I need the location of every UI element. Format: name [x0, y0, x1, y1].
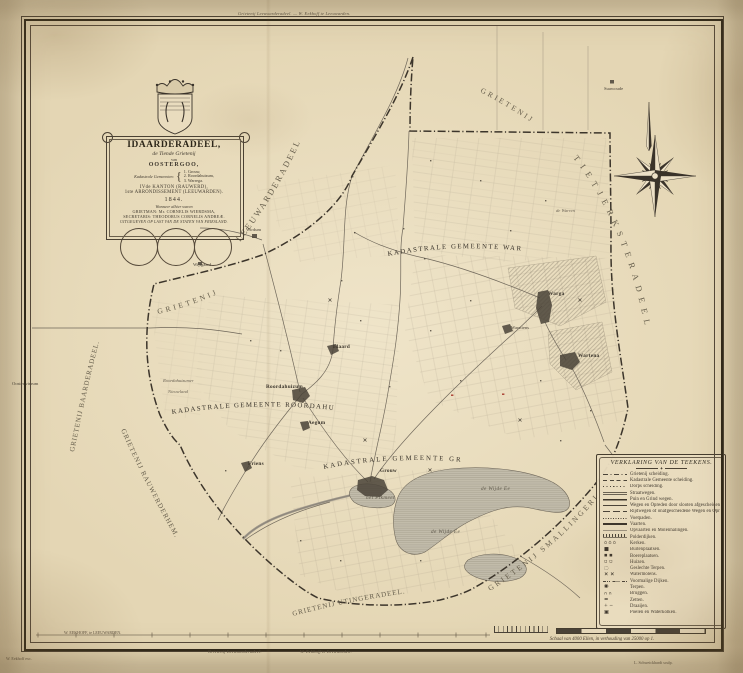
coat-of-arms — [140, 78, 210, 136]
legend-symbol-icon — [603, 597, 627, 603]
legend-symbol-icon — [603, 515, 627, 521]
arrondissement-line: 1ste ARRONDISSEMENT (LEEUWARDEN). — [108, 190, 240, 195]
svg-text:GRIETENIJ: GRIETENIJ — [479, 86, 536, 125]
legend-label: Boereplaatsen. — [630, 554, 659, 559]
map-title: IDAARDERADEEL, — [108, 140, 240, 150]
legend-label: Straatwegen. — [630, 491, 656, 496]
legend-label: Terpen. — [630, 585, 645, 590]
place-label-oosterwierum: Oosterwierum — [12, 381, 38, 386]
legend-symbol-icon — [603, 484, 627, 490]
legend-symbol-icon — [603, 584, 627, 590]
publisher-credit: W. EEKHOFF, te LEEUWARDEN. — [64, 630, 121, 635]
legend-symbol-icon — [603, 522, 627, 528]
legend-label: Wegen en Opreden door slooten afgescheid… — [630, 503, 720, 508]
legend-symbol-icon — [603, 553, 627, 559]
legend-label: Geslechte Terpen. — [630, 566, 665, 571]
legend-label: Polderdijken. — [630, 535, 656, 540]
place-label-wartena: Wartena — [578, 353, 599, 359]
area-label-roordahuizumer: Roordahuizumer — [163, 378, 194, 383]
engraver-credit: L. Schweickhardt sculp. — [634, 660, 673, 665]
place-label-friens: Friens — [248, 461, 264, 467]
legend-label: Kerken. — [630, 541, 646, 546]
legend-label: Puin en Grind wegen. — [630, 497, 673, 502]
place-label-wirdum: Wirdum — [246, 227, 261, 232]
legend-label: Dorps scheiding. — [630, 484, 663, 489]
secretaris-line: SECRETARIS: THEODORUS CORNELIS ANDREÆ. — [108, 214, 240, 219]
legend-symbol-icon — [603, 477, 627, 483]
legend-label: Poelen en Waterkolken. — [630, 610, 677, 615]
title-cartouche: IDAARDERADEEL, de Tiende Grietenij van O… — [104, 78, 246, 278]
cadastral-muni: 3. Warrega. — [184, 179, 214, 184]
legend-symbol-icon — [603, 566, 627, 572]
printer-credit: W. Eekhoff exc. — [6, 656, 32, 661]
water-label-wijde-ee-1: de Wijde Ee — [481, 486, 510, 492]
legend-label: Bruggen. — [630, 591, 648, 596]
legend-box: VERKLARING VAN DE TEEKENS. ✦ Grietenij s… — [596, 454, 726, 629]
legend-row: Poelen en Waterkolken. — [603, 610, 720, 616]
crown-icon — [157, 80, 193, 95]
legend-symbol-icon — [603, 603, 627, 609]
place-label-warstiens: Warstiens — [511, 325, 529, 330]
legend-label: Opvaarten en Molenhalingen. — [630, 528, 689, 533]
margin-note-bottom-left: Grietenij Leeuwarderadeel. — [208, 649, 262, 654]
legend-symbol-icon — [603, 503, 627, 509]
place-label-idaard: Idaard — [333, 344, 350, 350]
legend-row: Rijdwegen of onafgescheidene Wegen en Op… — [603, 509, 720, 515]
svg-text:GRIETENIJ RAUWERDERHEM.: GRIETENIJ RAUWERDERHEM. — [119, 428, 181, 540]
neighbor-label: GRIETENIJ BAARDERADEEL. — [68, 340, 101, 453]
area-label-nieuwland: Nieuwland — [168, 389, 188, 394]
legend-label: Draaijen. — [630, 604, 648, 609]
legend-symbol-icon — [603, 490, 627, 496]
cadastral-list: Kadastrale Gemeenten: { 1. Grouw, 2. Roo… — [108, 170, 240, 184]
legend-label: Rijdwegen of onafgescheidene Wegen en Op… — [630, 509, 720, 514]
cadastral-label: Kadastrale Gemeenten: — [134, 174, 174, 179]
map-year: 1844. — [108, 196, 240, 203]
legend-symbol-icon — [603, 610, 627, 616]
area-label-de-warren: de Warren — [556, 208, 575, 213]
place-label-grouw: Grouw — [380, 468, 397, 474]
place-label-aegum: Aegum — [308, 420, 325, 426]
scale-caption: Schaal van 4000 Ellen, in verhouding van… — [496, 637, 708, 642]
compass-rose — [614, 102, 696, 217]
legend-symbol-icon — [603, 591, 627, 597]
place-label-warga: Warga — [548, 291, 564, 297]
legend-symbol-icon — [603, 540, 627, 546]
margin-note-top: Grietenij Leeuwarderadeel. — W. Eekhoff … — [238, 11, 350, 16]
brace-ornament: { — [176, 171, 182, 181]
scale-comb — [494, 626, 548, 633]
shield-icon — [158, 94, 192, 134]
cartouche-text: IDAARDERADEEL, de Tiende Grietenij van O… — [108, 140, 240, 224]
issued-line: UITGEGEVEN OP LAST VAN DE STATEN VAN FRI… — [108, 220, 240, 224]
legend-label: Huizen. — [630, 560, 645, 565]
legend-label: Kadastrale Gemeente scheiding. — [630, 478, 694, 483]
map-sheet: GRIETENIJ LEEUWARDERADEEL GRIETENIJ TIET… — [0, 0, 743, 673]
legend-symbol-icon — [603, 528, 627, 534]
legend-symbol-icon — [603, 509, 627, 515]
legend-label: Vaarten. — [630, 522, 646, 527]
legend-label: Buitenplaatsen. — [630, 547, 661, 552]
margin-note-bottom-right: W. Eekhoff te Leeuwarden. — [300, 649, 352, 654]
svg-text:GRIETENIJ BAARDERADEEL.: GRIETENIJ BAARDERADEEL. — [68, 340, 101, 453]
neighbor-label: GRIETENIJ — [479, 86, 536, 125]
place-label-suawoude: Suawoude — [604, 86, 623, 91]
map-region: OOSTERGOO, — [108, 162, 240, 168]
legend-symbol-icon — [603, 496, 627, 502]
legend-label: Zetten. — [630, 598, 644, 603]
legend-symbol-icon — [603, 578, 627, 584]
legend-symbol-icon — [603, 534, 627, 540]
legend-label: Grietenij scheiding. — [630, 472, 669, 477]
scale-segments — [556, 628, 706, 634]
legend-symbol-icon — [603, 559, 627, 565]
neighbor-label: GRIETENIJ RAUWERDERHEM. — [119, 428, 181, 540]
legend-symbol-icon — [603, 471, 627, 477]
legend-symbol-icon — [603, 547, 627, 553]
water-label-wijde-ee-2: de Wijde Ee — [431, 529, 460, 535]
legend-label: Watermolens. — [630, 572, 657, 577]
legend-symbol-icon — [603, 572, 627, 578]
legend-row: Wegen en Opreden door slooten afgescheid… — [603, 502, 720, 508]
place-label-roordahuizum: Roordahuizum — [266, 384, 303, 390]
legend-label: Voetpaden. — [630, 516, 652, 521]
legend-label: Voormalige Dijken. — [630, 579, 669, 584]
water-label-pikmeer: het Pikmeer — [366, 495, 395, 501]
